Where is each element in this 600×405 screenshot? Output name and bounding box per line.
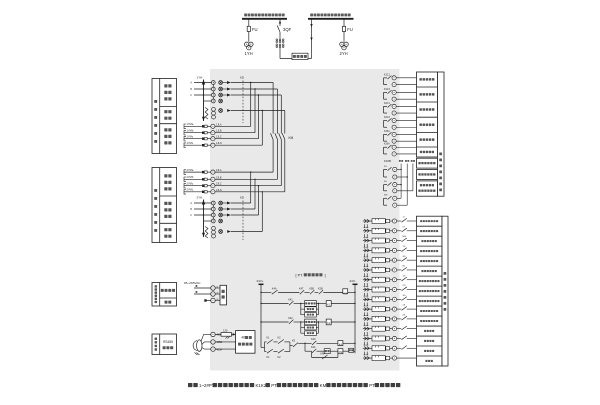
svg-text:1JLA: 1JLA <box>216 123 222 126</box>
svg-text:2G: 2G <box>403 285 406 287</box>
svg-text:24V+: 24V+ <box>257 279 264 283</box>
svg-text:2JLC: 2JLC <box>216 183 222 186</box>
svg-text:K1K2: K1K2 <box>256 383 267 388</box>
svg-text:PT: PT <box>271 383 277 388</box>
svg-text:24V-: 24V- <box>350 279 356 283</box>
svg-text:1YH: 1YH <box>245 51 253 56</box>
svg-text:85~265VAC: 85~265VAC <box>184 281 201 285</box>
svg-text:MG: MG <box>403 236 407 238</box>
svg-text:K16B: K16B <box>384 159 391 163</box>
svg-text:1JLC: 1JLC <box>216 136 222 139</box>
svg-text:K4T: K4T <box>299 287 304 290</box>
svg-text:3QF: 3QF <box>283 27 292 32</box>
svg-text:C: C <box>190 214 192 217</box>
svg-text:K41: K41 <box>288 298 293 301</box>
svg-text:1JLN: 1JLN <box>216 142 222 145</box>
svg-text:120: 120 <box>223 329 228 333</box>
svg-text:K1C3: K1C3 <box>384 89 390 91</box>
svg-text:1YMb: 1YMb <box>187 129 194 133</box>
svg-text:485B: 485B <box>216 341 222 344</box>
svg-text:2YH: 2YH <box>197 196 203 200</box>
svg-text:485A: 485A <box>216 348 222 351</box>
svg-text:2JLB: 2JLB <box>216 176 222 179</box>
svg-text:2JLN: 2JLN <box>216 189 222 192</box>
svg-text:1JLB: 1JLB <box>216 130 222 133</box>
svg-text:2YMc: 2YMc <box>187 182 194 186</box>
svg-text:3G: 3G <box>403 295 406 297</box>
svg-text:K43: K43 <box>311 338 316 341</box>
svg-text:PT: PT <box>369 383 375 388</box>
svg-text:KM: KM <box>289 136 294 140</box>
svg-text:K2C3: K2C3 <box>384 117 390 119</box>
svg-text:RS485: RS485 <box>163 340 173 344</box>
svg-text:[ PT: [ PT <box>296 273 304 277</box>
svg-text:2YH: 2YH <box>340 51 348 56</box>
svg-text:KM: KM <box>321 352 325 355</box>
svg-text:2JLA: 2JLA <box>216 169 222 172</box>
svg-text:1YH: 1YH <box>197 76 203 80</box>
svg-text:K4A: K4A <box>272 287 277 290</box>
svg-text:K42: K42 <box>288 317 293 320</box>
svg-text:1YML: 1YML <box>187 141 194 145</box>
svg-text:KM: KM <box>384 195 387 197</box>
svg-text:1YMa: 1YMa <box>187 122 194 126</box>
svg-text:]: ] <box>325 273 326 277</box>
svg-text:K1C1: K1C1 <box>384 74 390 76</box>
svg-text:K15A: K15A <box>384 130 390 133</box>
svg-text:K2C1: K2C1 <box>384 103 390 105</box>
svg-text:K5B: K5B <box>309 287 314 290</box>
svg-text:2YMa: 2YMa <box>187 168 194 172</box>
svg-text:K44: K44 <box>311 346 316 349</box>
svg-text:FU: FU <box>347 27 353 32</box>
svg-text:2YMb: 2YMb <box>187 175 194 179</box>
svg-text:1YMc: 1YMc <box>187 135 194 139</box>
svg-text:SD: SD <box>403 256 406 258</box>
svg-text:KM: KM <box>339 351 343 354</box>
svg-text:1G: 1G <box>403 275 406 277</box>
svg-text:K16A: K16A <box>384 143 390 146</box>
svg-text:FU: FU <box>252 27 258 32</box>
svg-text:K2B: K2B <box>318 287 323 290</box>
svg-text:1~2#PT: 1~2#PT <box>199 383 215 388</box>
svg-text:KM: KM <box>320 383 327 388</box>
svg-text:2YML: 2YML <box>187 188 194 192</box>
svg-text:C: C <box>190 94 192 97</box>
